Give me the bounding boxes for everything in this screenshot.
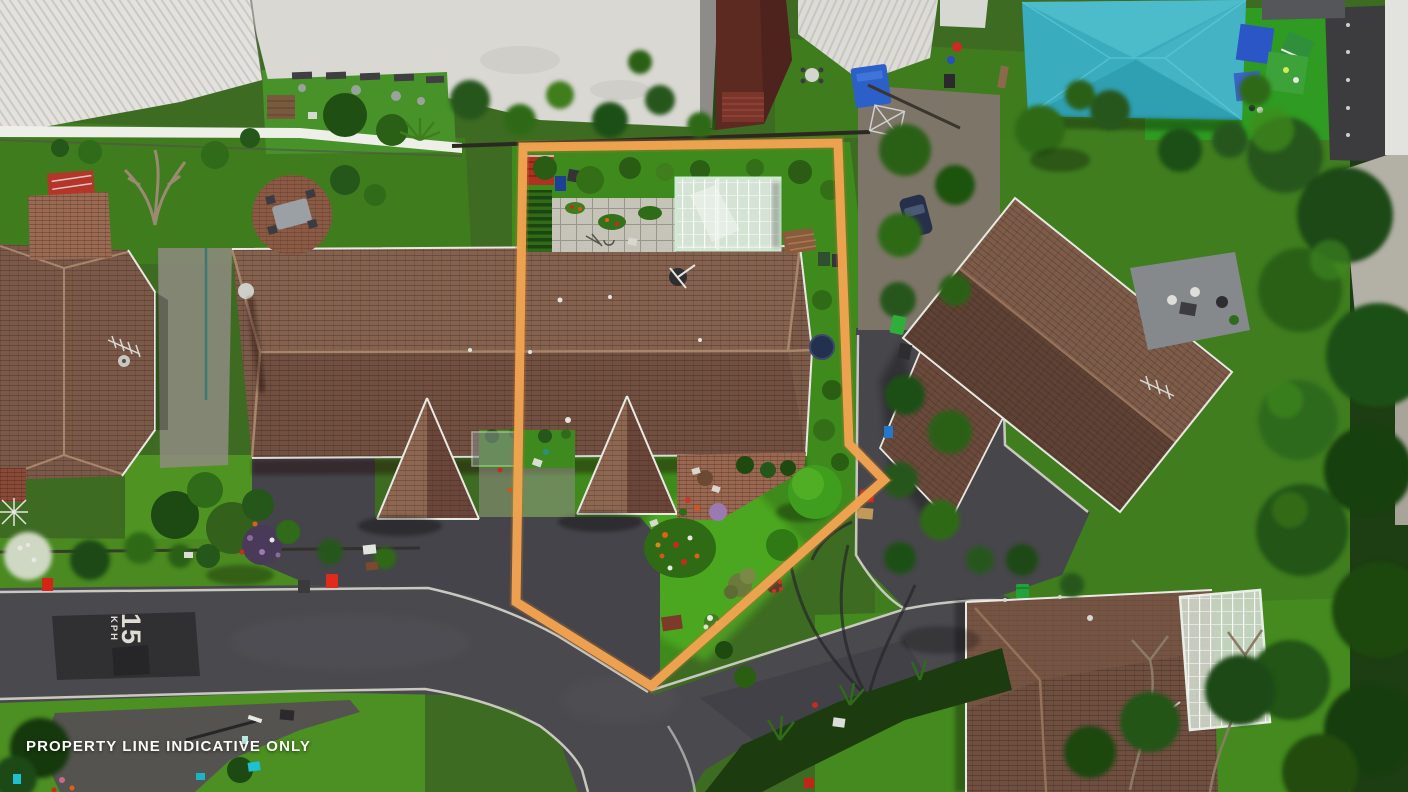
red-bin — [804, 778, 814, 788]
blossom-bush — [4, 532, 52, 580]
rotary-clothesline — [0, 498, 28, 526]
lilac-bush — [709, 503, 727, 521]
aerial-photo-canvas: 15 KPH — [0, 0, 1408, 792]
dark-bin — [298, 580, 310, 593]
property-line-caption: PROPERTY LINE INDICATIVE ONLY — [26, 738, 311, 755]
water-tank — [810, 335, 834, 359]
blue-bin — [555, 176, 566, 191]
green-bin — [1016, 584, 1029, 598]
road-marking-speed: 15 — [116, 613, 146, 645]
stone-path — [158, 248, 232, 468]
white-wall — [1385, 0, 1408, 155]
road-marking-unit: KPH — [108, 616, 119, 642]
teal-marker — [248, 761, 261, 772]
outdoor-dining — [252, 175, 332, 255]
red-bin — [326, 574, 338, 588]
greenhouse — [676, 178, 780, 250]
satellite-dish — [238, 283, 254, 299]
teal-marker — [13, 774, 21, 784]
aerial-photo: 15 KPH — [0, 0, 1408, 792]
road-marking-15kph: 15 KPH — [108, 613, 146, 645]
letterbox — [661, 615, 683, 632]
red-bin — [42, 578, 53, 591]
